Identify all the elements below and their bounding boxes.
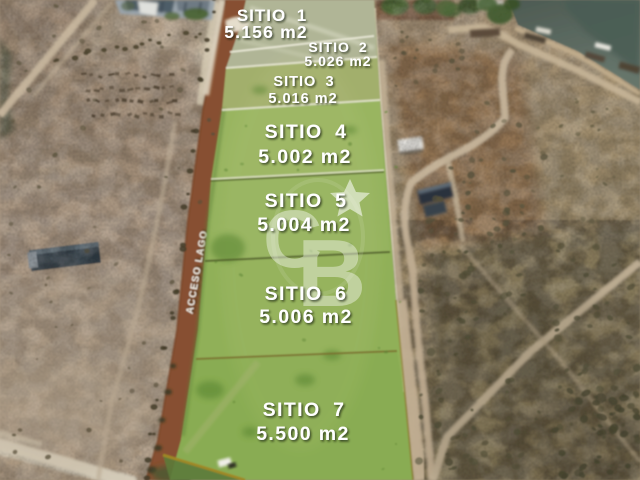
svg-text:SITIO 6: SITIO 6: [265, 283, 348, 305]
svg-text:SITIO 7: SITIO 7: [263, 399, 346, 421]
svg-text:5.156 m2: 5.156 m2: [224, 22, 308, 42]
svg-text:5.006 m2: 5.006 m2: [259, 306, 353, 328]
svg-text:5.004 m2: 5.004 m2: [257, 214, 351, 236]
svg-text:SITIO 4: SITIO 4: [265, 121, 348, 143]
svg-text:SITIO 3: SITIO 3: [273, 74, 334, 90]
svg-text:5.016 m2: 5.016 m2: [268, 91, 337, 107]
svg-text:5.500 m2: 5.500 m2: [256, 423, 350, 445]
svg-text:5.002 m2: 5.002 m2: [258, 146, 352, 168]
svg-text:5.026 m2: 5.026 m2: [304, 53, 371, 69]
svg-text:SITIO 5: SITIO 5: [265, 190, 348, 212]
